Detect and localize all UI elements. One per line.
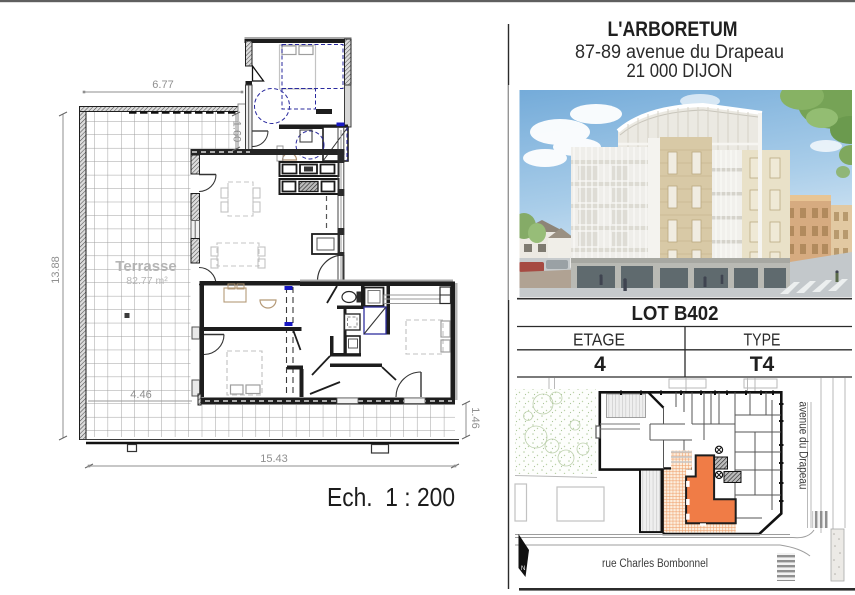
svg-text:4: 4 xyxy=(594,353,606,376)
svg-text:4.46: 4.46 xyxy=(130,389,151,401)
svg-text:T4: T4 xyxy=(750,353,775,376)
svg-text:Terrasse: Terrasse xyxy=(115,258,176,275)
svg-text:ETAGE: ETAGE xyxy=(573,330,625,350)
svg-text:1.60: 1.60 xyxy=(231,121,243,142)
svg-text:87-89 avenue du Drapeau: 87-89 avenue du Drapeau xyxy=(575,42,784,63)
svg-text:LOT B402: LOT B402 xyxy=(632,302,719,325)
svg-text:1.46: 1.46 xyxy=(469,407,481,428)
svg-text:N: N xyxy=(521,566,525,572)
svg-text:Ech. 1 : 200: Ech. 1 : 200 xyxy=(327,482,455,512)
svg-text:13.88: 13.88 xyxy=(50,256,62,284)
svg-text:avenue du Drapeau: avenue du Drapeau xyxy=(797,402,809,490)
svg-text:6.77: 6.77 xyxy=(152,79,173,91)
svg-text:15.43: 15.43 xyxy=(260,453,288,465)
svg-text:TYPE: TYPE xyxy=(744,330,781,350)
svg-text:L'ARBORETUM: L'ARBORETUM xyxy=(608,18,738,41)
svg-text:rue Charles Bombonnel: rue Charles Bombonnel xyxy=(602,558,708,570)
svg-text:82.77 m²: 82.77 m² xyxy=(126,275,168,287)
